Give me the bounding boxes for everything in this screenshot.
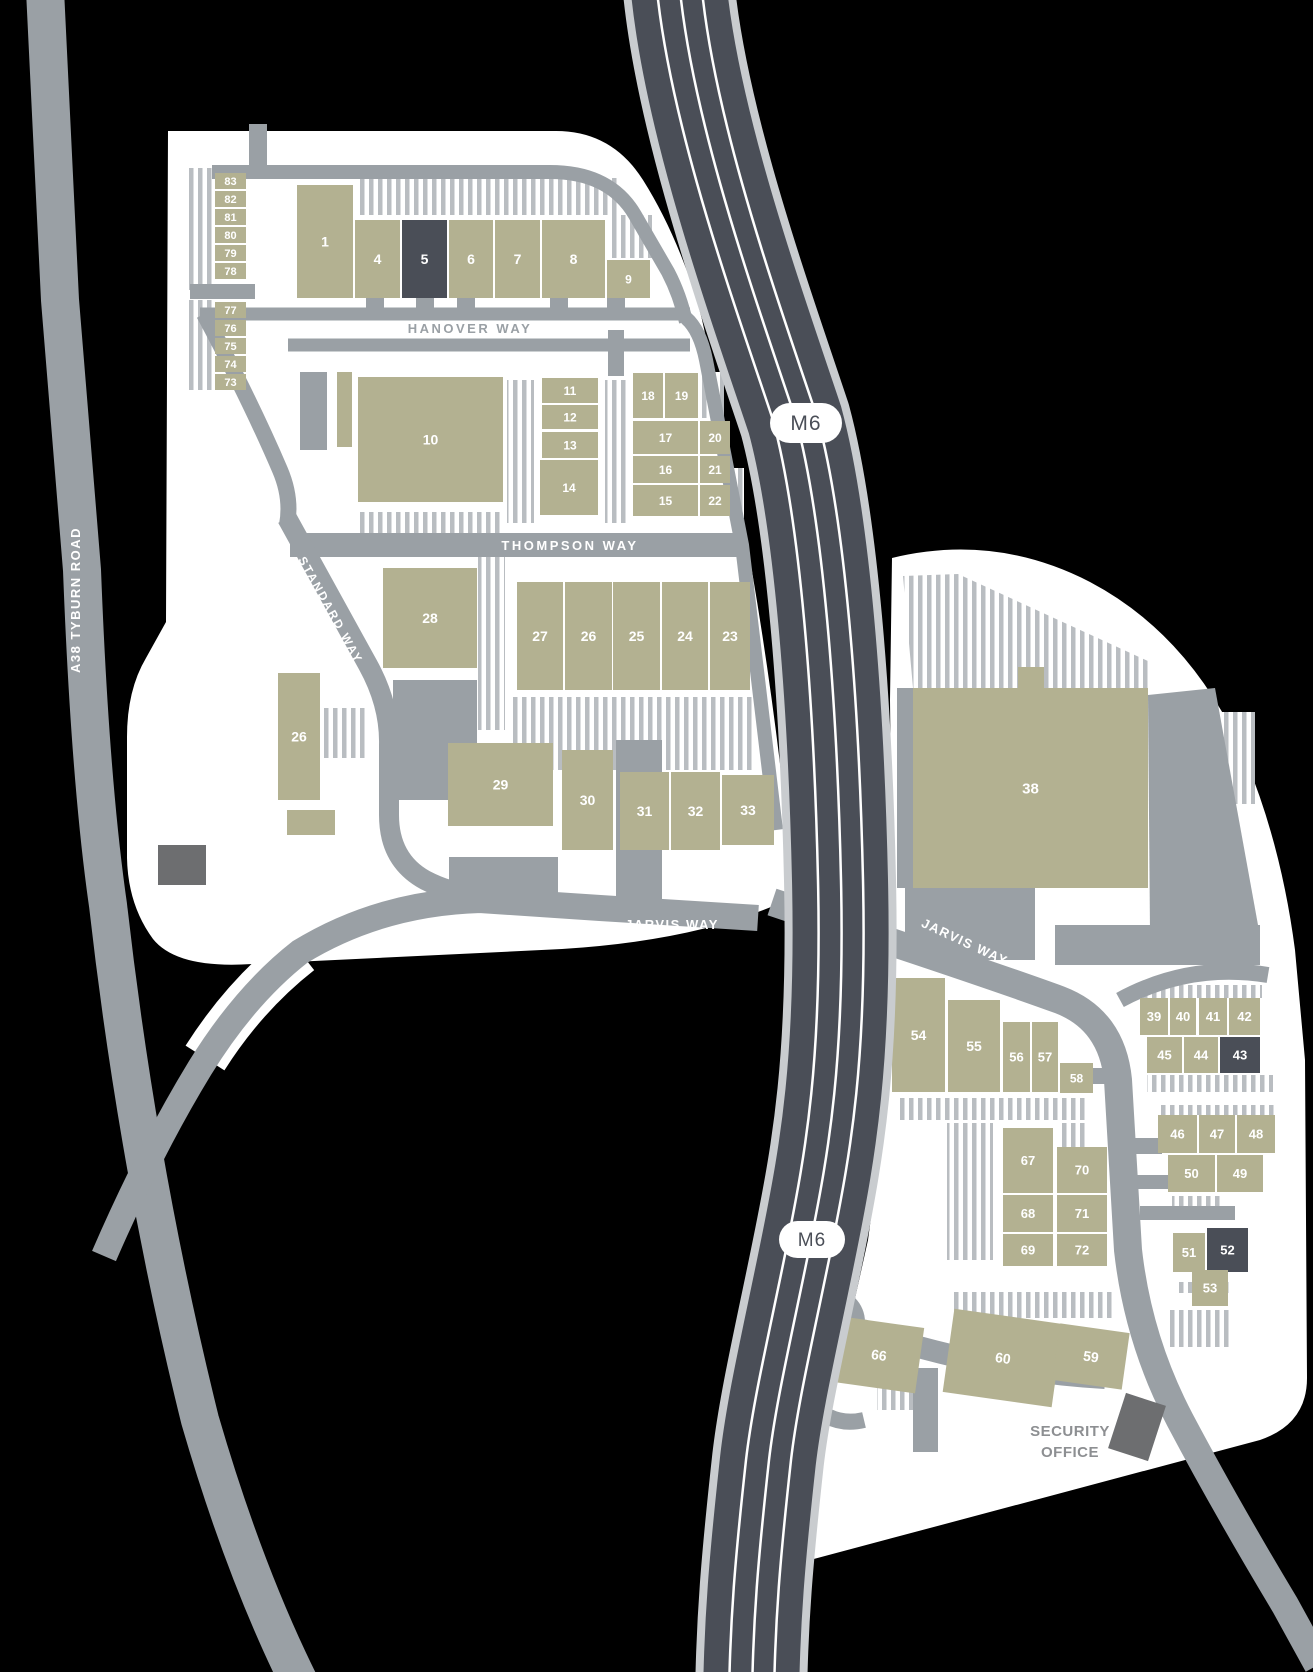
building-24-number: 24 <box>677 628 693 644</box>
building-4-number: 4 <box>374 251 382 267</box>
building-29[interactable]: 29 <box>448 743 553 826</box>
building-50[interactable]: 50 <box>1168 1155 1215 1192</box>
m6-badge-north: M6 <box>770 403 842 443</box>
building-59[interactable]: 59 <box>1052 1323 1129 1389</box>
building-52-number: 52 <box>1220 1243 1234 1258</box>
building-24[interactable]: 24 <box>662 582 708 690</box>
building-82-number: 82 <box>224 194 236 206</box>
building-78-number: 78 <box>224 266 236 278</box>
building-38-number: 38 <box>1022 780 1039 797</box>
label-a38-tyburn-road: A38 TYBURN ROAD <box>68 527 83 673</box>
building-55[interactable]: 55 <box>948 1000 1000 1092</box>
building-13-number: 13 <box>563 438 577 452</box>
building-15-number: 15 <box>659 494 673 508</box>
building-49[interactable]: 49 <box>1217 1155 1263 1192</box>
building-83-number: 83 <box>224 176 236 188</box>
building-57-number: 57 <box>1038 1050 1052 1065</box>
label-thompson-way: THOMPSON WAY <box>501 538 638 553</box>
building-56[interactable]: 56 <box>1003 1022 1030 1092</box>
building-12-number: 12 <box>563 410 577 424</box>
building-16-number: 16 <box>659 463 673 477</box>
building-17-number: 17 <box>659 431 673 445</box>
building-70[interactable]: 70 <box>1057 1147 1107 1193</box>
building-70-number: 70 <box>1075 1163 1089 1178</box>
building-45-number: 45 <box>1157 1048 1171 1063</box>
building-20[interactable]: 20 <box>700 421 730 454</box>
building-49-number: 49 <box>1233 1166 1247 1181</box>
building-11-number: 11 <box>564 384 577 398</box>
building-60-number: 60 <box>994 1349 1012 1367</box>
building-1-number: 1 <box>321 234 329 250</box>
building-80[interactable]: 80 <box>215 227 246 243</box>
building-41-number: 41 <box>1206 1009 1220 1024</box>
building-22[interactable]: 22 <box>700 485 730 516</box>
building-73-number: 73 <box>224 377 236 389</box>
site-plan-map: 8382818079787776757473145678910111213141… <box>0 0 1313 1672</box>
building-8-number: 8 <box>570 251 578 267</box>
building-21[interactable]: 21 <box>700 456 730 483</box>
building-51[interactable]: 51 <box>1173 1233 1205 1272</box>
building-79-number: 79 <box>224 248 236 260</box>
building-46[interactable]: 46 <box>1158 1115 1197 1153</box>
building-26[interactable]: 26 <box>565 582 612 690</box>
building-67-number: 67 <box>1021 1153 1035 1168</box>
building-47-number: 47 <box>1210 1127 1224 1142</box>
building-14-number: 14 <box>562 481 576 495</box>
building-38[interactable]: 38 <box>913 688 1148 888</box>
building-7-number: 7 <box>514 251 522 267</box>
label-security-office-2: OFFICE <box>1041 1444 1099 1461</box>
building-69-number: 69 <box>1021 1243 1035 1258</box>
building-54[interactable]: 54 <box>892 978 945 1092</box>
label-security-office-1: SECURITY <box>1030 1423 1110 1440</box>
building-23-number: 23 <box>722 628 738 644</box>
building-58[interactable]: 58 <box>1060 1063 1093 1093</box>
building-78[interactable]: 78 <box>215 263 246 279</box>
building-31[interactable]: 31 <box>620 772 669 850</box>
building-39-number: 39 <box>1147 1009 1161 1024</box>
building-48[interactable]: 48 <box>1237 1115 1275 1153</box>
building-79[interactable]: 79 <box>215 245 246 261</box>
building-16[interactable]: 16 <box>633 456 698 483</box>
building-10[interactable]: 10 <box>358 377 503 502</box>
building-47[interactable]: 47 <box>1199 1115 1235 1153</box>
building-annex-73 <box>337 372 352 447</box>
building-44-number: 44 <box>1194 1048 1209 1063</box>
building-77-number: 77 <box>224 305 236 317</box>
building-13[interactable]: 13 <box>542 432 598 458</box>
building-69[interactable]: 69 <box>1003 1234 1053 1266</box>
building-28-number: 28 <box>422 610 438 626</box>
building-14[interactable]: 14 <box>540 460 598 515</box>
building-18[interactable]: 18 <box>633 373 663 418</box>
building-80-number: 80 <box>224 230 236 242</box>
m6-badge-north-text: M6 <box>790 412 821 435</box>
building-4[interactable]: 4 <box>355 220 400 298</box>
building-19-number: 19 <box>675 389 689 403</box>
building-75[interactable]: 75 <box>215 338 246 354</box>
building-43-number: 43 <box>1233 1048 1247 1063</box>
building-58-number: 58 <box>1070 1071 1084 1085</box>
building-30[interactable]: 30 <box>562 750 613 850</box>
building-33-number: 33 <box>740 802 756 818</box>
building-76-number: 76 <box>224 323 236 335</box>
building-1[interactable]: 1 <box>297 185 353 298</box>
building-15[interactable]: 15 <box>633 485 698 516</box>
building-50-number: 50 <box>1184 1166 1198 1181</box>
building-26[interactable]: 26 <box>278 673 320 800</box>
building-57[interactable]: 57 <box>1032 1022 1058 1092</box>
building-52[interactable]: 52 <box>1207 1228 1248 1272</box>
building-32-number: 32 <box>688 803 704 819</box>
building-72[interactable]: 72 <box>1057 1234 1107 1266</box>
building-27[interactable]: 27 <box>517 582 563 690</box>
building-42-number: 42 <box>1237 1009 1251 1024</box>
building-71-number: 71 <box>1075 1206 1089 1221</box>
building-30-number: 30 <box>580 792 596 808</box>
building-20-number: 20 <box>708 431 722 445</box>
building-21-number: 21 <box>708 463 722 477</box>
building-19[interactable]: 19 <box>665 373 698 418</box>
building-26-number: 26 <box>581 628 597 644</box>
building-76[interactable]: 76 <box>215 320 246 336</box>
building-5[interactable]: 5 <box>402 220 447 298</box>
building-40-number: 40 <box>1176 1009 1190 1024</box>
building-41[interactable]: 41 <box>1199 998 1227 1035</box>
building-27-number: 27 <box>532 628 548 644</box>
building-74-number: 74 <box>224 359 237 371</box>
building-5-number: 5 <box>421 251 429 267</box>
building-32[interactable]: 32 <box>671 772 720 850</box>
building-48-number: 48 <box>1249 1127 1263 1142</box>
label-hanover-way: HANOVER WAY <box>408 321 533 336</box>
building-43[interactable]: 43 <box>1220 1037 1260 1073</box>
building-25[interactable]: 25 <box>613 582 660 690</box>
building-75-number: 75 <box>224 341 236 353</box>
building-45[interactable]: 45 <box>1147 1037 1182 1073</box>
building-53[interactable]: 53 <box>1192 1270 1228 1306</box>
building-59-number: 59 <box>1082 1348 1100 1366</box>
building-6-number: 6 <box>467 251 475 267</box>
building-8[interactable]: 8 <box>542 220 605 298</box>
building-29-number: 29 <box>493 777 509 793</box>
label-jarvis-way-west: JARVIS WAY <box>625 917 719 932</box>
building-33[interactable]: 33 <box>722 775 774 845</box>
building-46-number: 46 <box>1170 1127 1184 1142</box>
building-73[interactable]: 73 <box>215 374 246 390</box>
building-55-number: 55 <box>966 1038 982 1054</box>
building-25-number: 25 <box>629 628 645 644</box>
building-66-number: 66 <box>870 1346 888 1364</box>
building-56-number: 56 <box>1009 1050 1023 1065</box>
building-68[interactable]: 68 <box>1003 1195 1053 1232</box>
building-annex-74 <box>287 810 335 835</box>
m6-badge-south-text: M6 <box>798 1230 826 1251</box>
building-23[interactable]: 23 <box>710 582 750 690</box>
building-44[interactable]: 44 <box>1184 1037 1218 1073</box>
building-11[interactable]: 11 <box>542 378 598 403</box>
building-77[interactable]: 77 <box>215 302 246 318</box>
building-10-number: 10 <box>423 432 439 448</box>
building-gray-west[interactable] <box>158 845 206 885</box>
building-40[interactable]: 40 <box>1170 998 1196 1035</box>
building-22-number: 22 <box>708 494 722 508</box>
building-9[interactable]: 9 <box>607 260 650 298</box>
building-42[interactable]: 42 <box>1229 998 1260 1035</box>
building-28[interactable]: 28 <box>383 568 477 668</box>
building-72-number: 72 <box>1075 1243 1089 1258</box>
building-31-number: 31 <box>637 803 653 819</box>
building-74[interactable]: 74 <box>215 356 246 372</box>
building-83[interactable]: 83 <box>215 173 246 189</box>
building-53-number: 53 <box>1203 1281 1217 1296</box>
building-54-number: 54 <box>911 1027 927 1043</box>
building-67[interactable]: 67 <box>1003 1128 1053 1193</box>
building-82[interactable]: 82 <box>215 191 246 207</box>
building-17[interactable]: 17 <box>633 421 698 454</box>
building-81[interactable]: 81 <box>215 209 246 225</box>
building-60[interactable]: 60 <box>943 1309 1064 1407</box>
building-51-number: 51 <box>1182 1245 1196 1260</box>
building-81-number: 81 <box>224 212 236 224</box>
building-6[interactable]: 6 <box>449 220 493 298</box>
building-9-number: 9 <box>625 272 632 286</box>
building-26-number: 26 <box>291 729 307 745</box>
building-68-number: 68 <box>1021 1206 1035 1221</box>
building-annex-75 <box>1018 667 1044 689</box>
building-18-number: 18 <box>641 389 655 403</box>
m6-badge-south: M6 <box>779 1221 845 1258</box>
building-39[interactable]: 39 <box>1140 998 1168 1035</box>
building-71[interactable]: 71 <box>1057 1195 1107 1232</box>
building-12[interactable]: 12 <box>542 405 598 429</box>
building-7[interactable]: 7 <box>495 220 540 298</box>
